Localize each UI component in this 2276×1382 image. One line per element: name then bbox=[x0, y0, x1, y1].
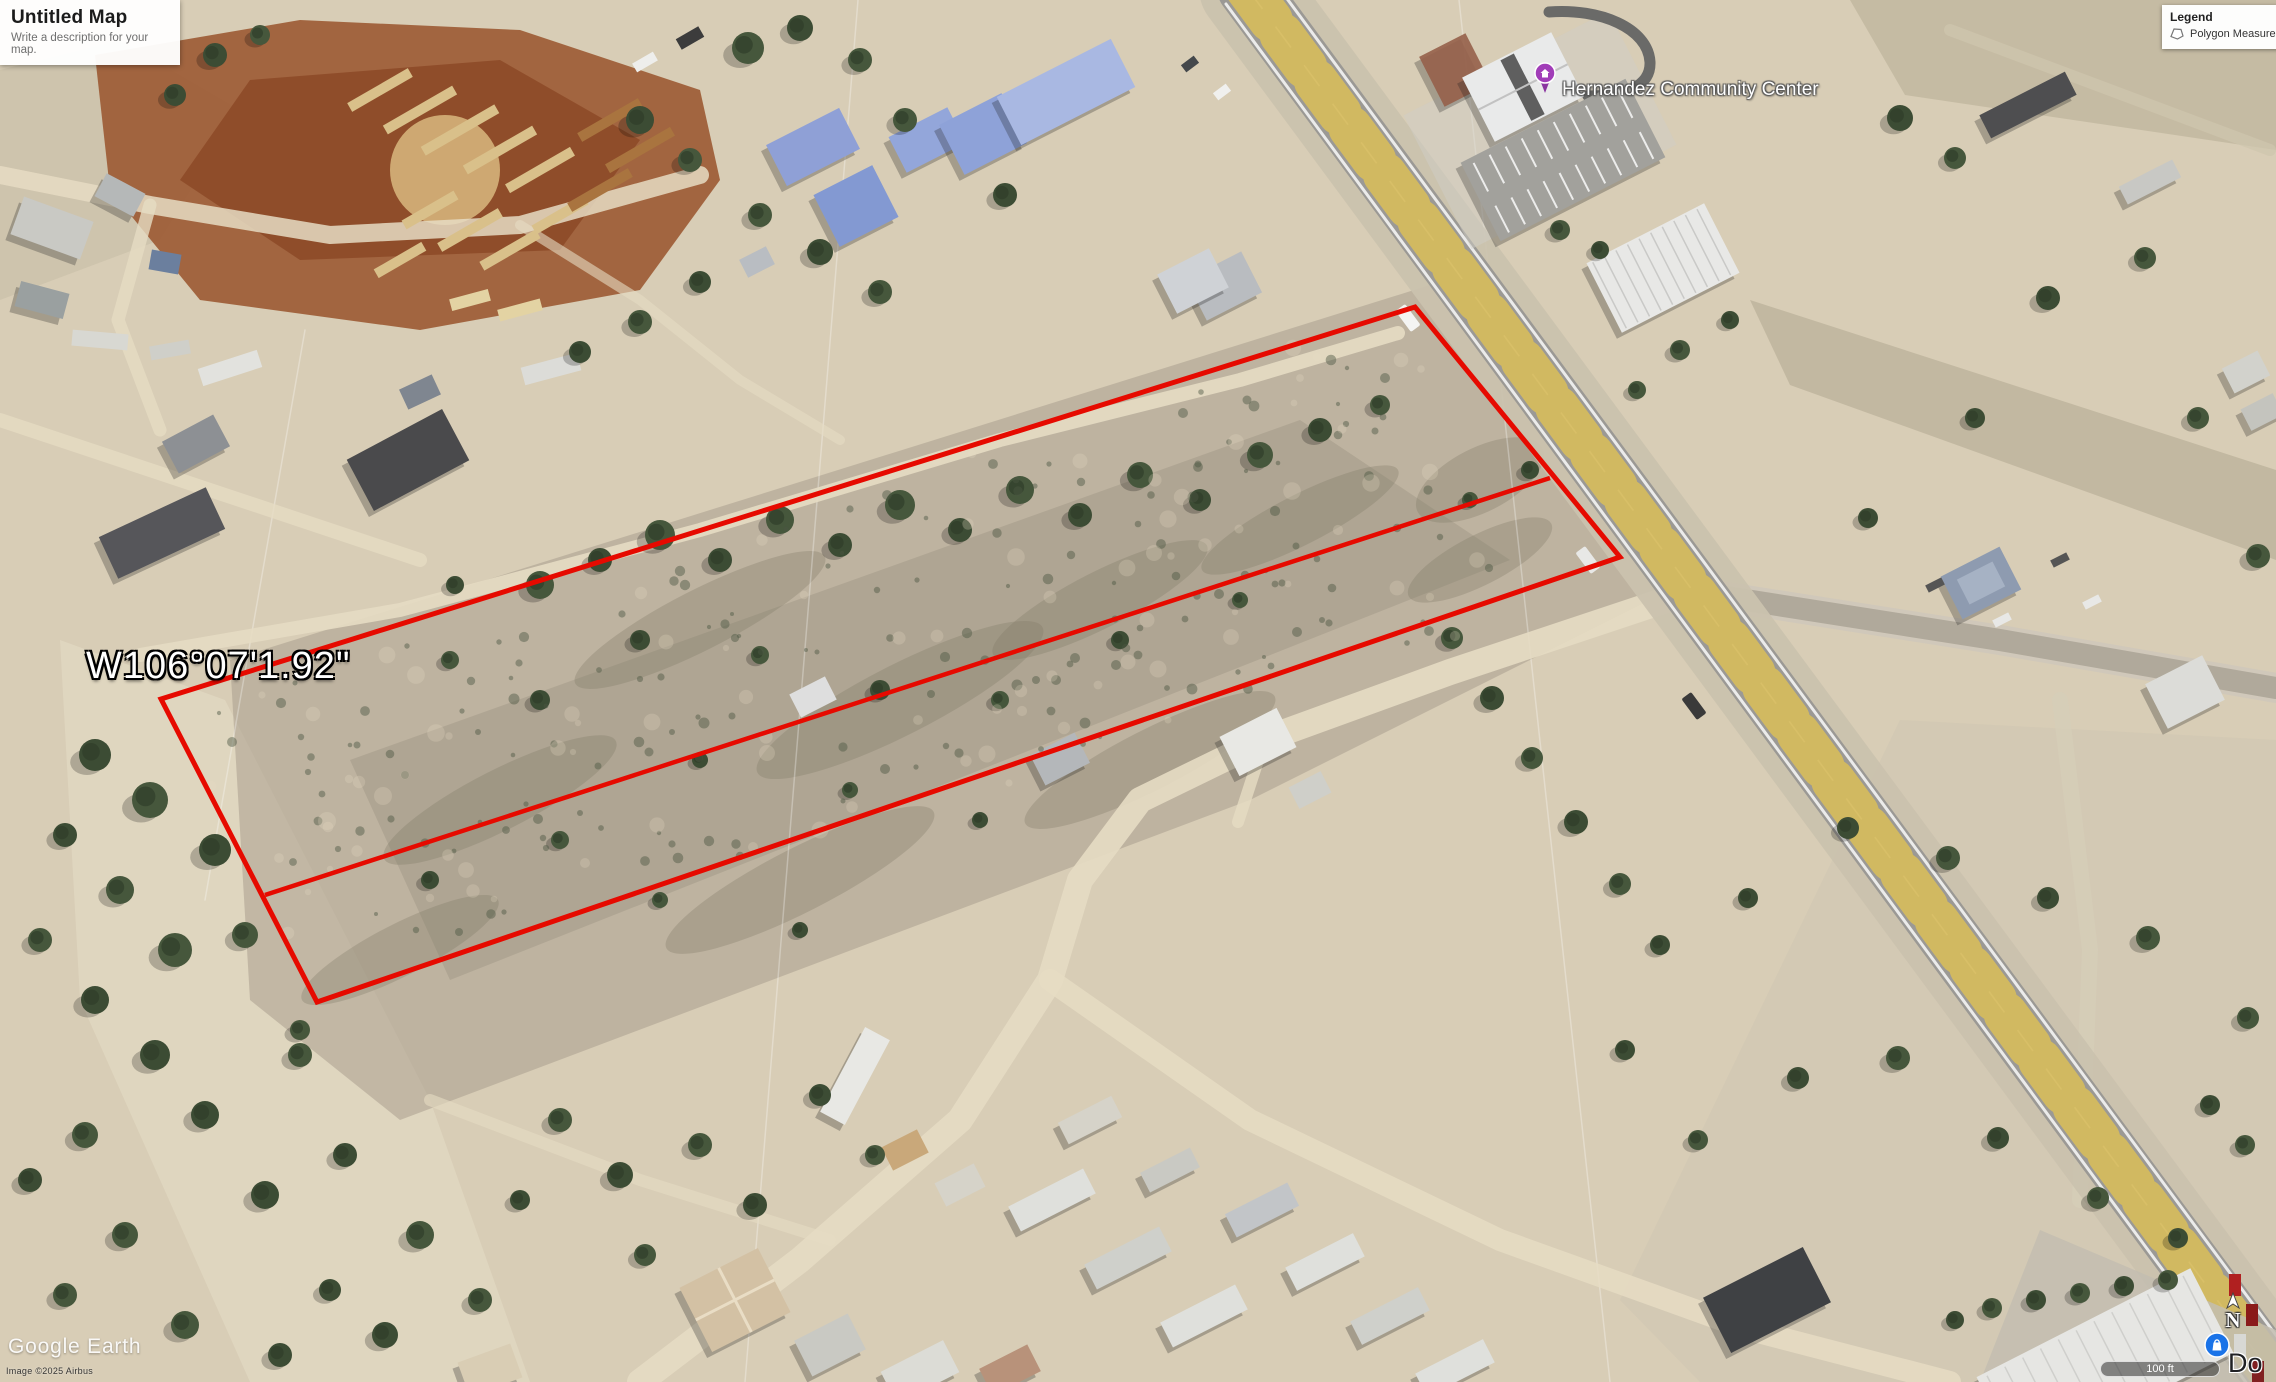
scale-bar: 100 ft bbox=[2100, 1361, 2220, 1377]
polygon-outline-icon bbox=[2170, 28, 2184, 40]
satellite-map[interactable] bbox=[0, 0, 2276, 1382]
google-earth-window: W106°07'1.92" Hernandez Community Center… bbox=[0, 0, 2276, 1382]
map-description-placeholder[interactable]: Write a description for your map. bbox=[11, 32, 169, 56]
legend-panel: Legend Polygon Measure bbox=[2162, 5, 2276, 49]
legend-item-label: Polygon Measure bbox=[2190, 28, 2276, 40]
map-title-panel[interactable]: Untitled Map Write a description for you… bbox=[0, 0, 180, 65]
poi-label[interactable]: Do bbox=[2228, 1348, 2263, 1379]
legend-title: Legend bbox=[2170, 10, 2276, 24]
google-earth-logo: Google Earth bbox=[8, 1335, 141, 1359]
community-center-label[interactable]: Hernandez Community Center bbox=[1562, 79, 1819, 101]
compass-label: N bbox=[2218, 1308, 2248, 1333]
imagery-attribution: Image ©2025 Airbus bbox=[6, 1366, 93, 1376]
legend-item-polygon-measure[interactable]: Polygon Measure bbox=[2170, 28, 2276, 40]
community-center-pin-icon[interactable] bbox=[1533, 62, 1557, 94]
satellite-map-viewport[interactable] bbox=[0, 0, 2276, 1382]
map-title[interactable]: Untitled Map bbox=[11, 7, 169, 29]
coordinate-label: W106°07'1.92" bbox=[86, 645, 350, 688]
shopping-poi-icon[interactable] bbox=[2204, 1332, 2230, 1358]
compass-north[interactable]: N bbox=[2218, 1292, 2248, 1333]
